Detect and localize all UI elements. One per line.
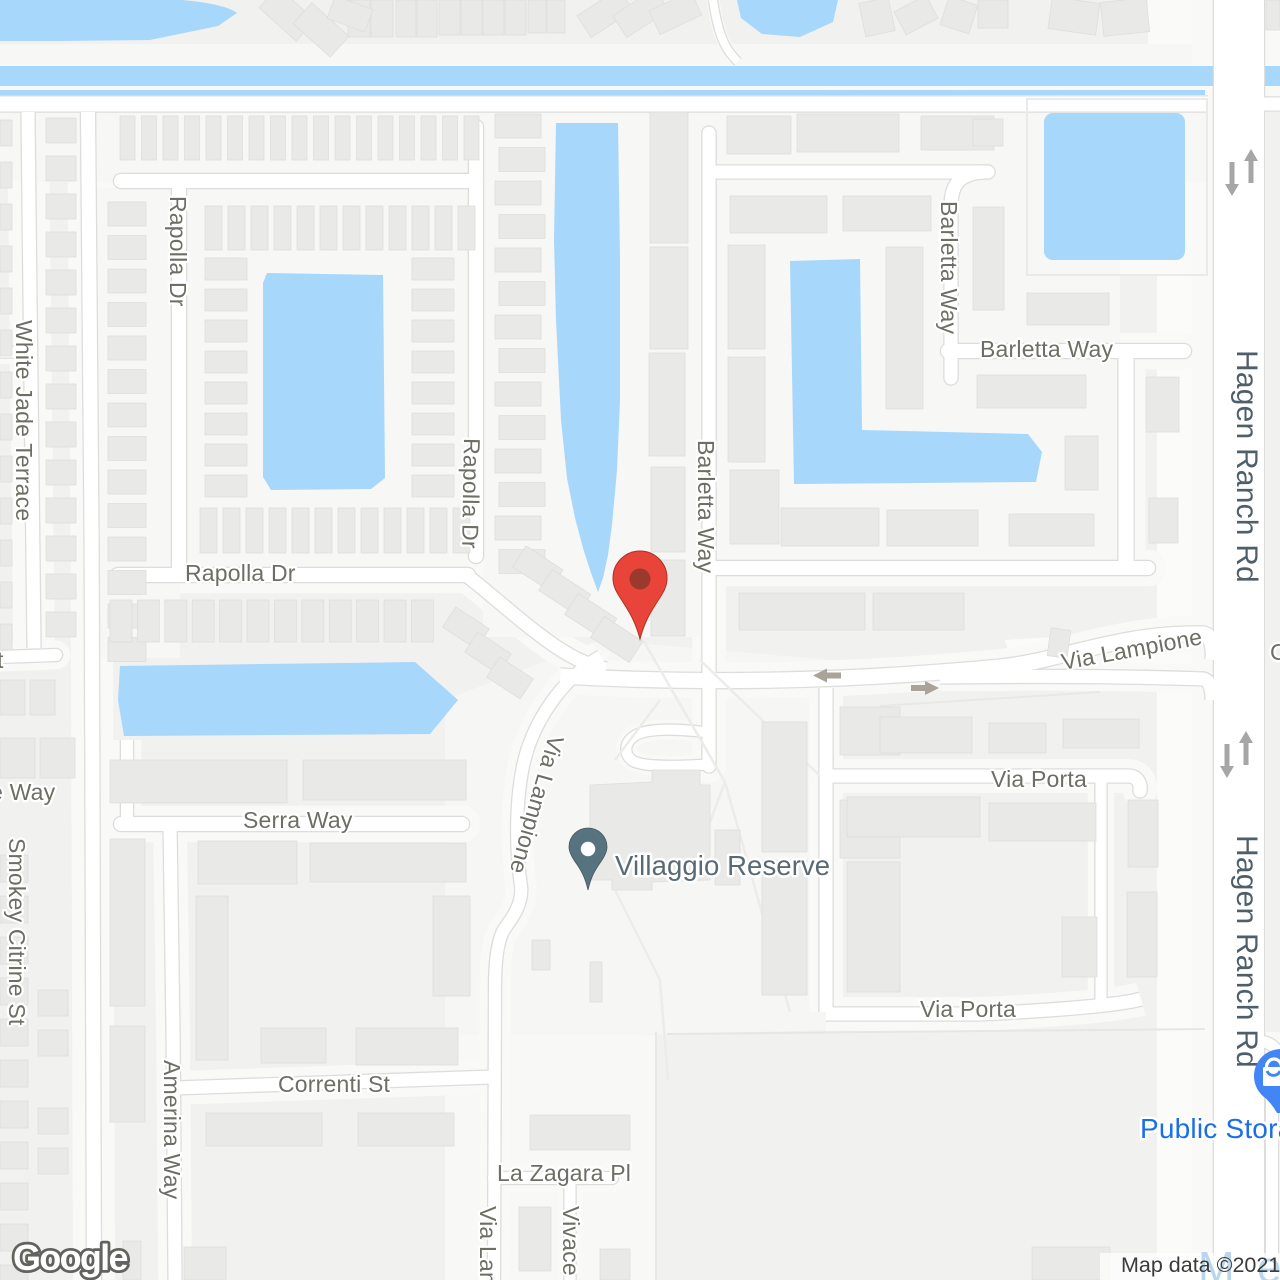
- svg-text:Via Porta: Via Porta: [920, 996, 1016, 1022]
- svg-text:Rapolla Dr: Rapolla Dr: [185, 560, 296, 586]
- svg-text:White Jade Terrace: White Jade Terrace: [11, 320, 37, 521]
- svg-text:Smokey Citrine St: Smokey Citrine St: [4, 838, 30, 1026]
- svg-text:Serra Way: Serra Way: [243, 807, 353, 833]
- svg-text:Via Porta: Via Porta: [991, 766, 1087, 792]
- svg-text:Hagen Ranch Rd: Hagen Ranch Rd: [1230, 350, 1263, 583]
- svg-text:C: C: [1270, 639, 1280, 665]
- svg-text:Correnti St: Correnti St: [278, 1071, 391, 1097]
- svg-text:Rapolla Dr: Rapolla Dr: [457, 438, 485, 549]
- svg-text:Google: Google: [13, 1237, 127, 1278]
- svg-text:Barletta Way: Barletta Way: [980, 336, 1114, 362]
- svg-text:Via Lam: Via Lam: [475, 1206, 501, 1280]
- svg-text:t: t: [0, 647, 4, 673]
- svg-text:Hagen Ranch Rd: Hagen Ranch Rd: [1230, 835, 1263, 1068]
- svg-text:Amerina Way: Amerina Way: [159, 1060, 185, 1200]
- svg-text:Barletta Way: Barletta Way: [693, 440, 719, 574]
- svg-text:Villaggio Reserve: Villaggio Reserve: [615, 850, 830, 881]
- svg-text:Public Stora: Public Stora: [1140, 1113, 1280, 1144]
- svg-text:Rapolla Dr: Rapolla Dr: [165, 196, 191, 307]
- svg-text:Barletta Way: Barletta Way: [936, 201, 962, 335]
- svg-text:e Way: e Way: [0, 779, 56, 805]
- svg-text:Map data ©2021: Map data ©2021: [1121, 1253, 1280, 1277]
- svg-text:La Zagara Pl: La Zagara Pl: [497, 1160, 631, 1186]
- svg-text:Vivace: Vivace: [558, 1206, 584, 1276]
